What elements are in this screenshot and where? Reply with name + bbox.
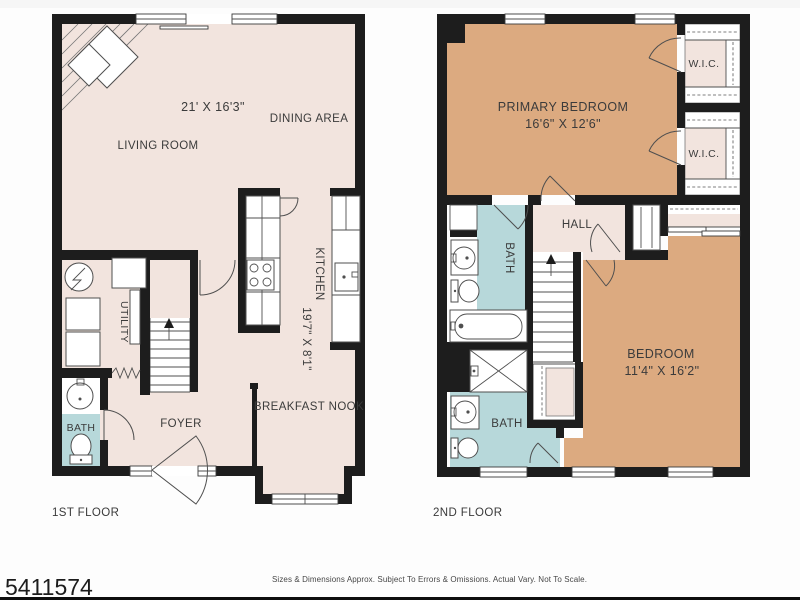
wic-lower-label: W.I.C. <box>689 148 720 160</box>
washer <box>66 298 100 330</box>
bath1-sink <box>67 383 93 409</box>
floor2-plan: PRIMARY BEDROOM 16'6" X 12'6" W.I.C. W.I… <box>425 5 760 505</box>
front-door-opening <box>152 466 198 476</box>
primary-bedroom-label: PRIMARY BEDROOM <box>498 100 629 114</box>
floor2-title: 2ND FLOOR <box>433 507 502 519</box>
bay-floor <box>263 466 344 494</box>
dryer <box>66 332 100 366</box>
floorplan-page: 21' X 16'3" DINING AREA LIVING ROOM KITC… <box>0 0 800 600</box>
kitchen-counter <box>332 196 360 342</box>
floor1-plan: 21' X 16'3" DINING AREA LIVING ROOM KITC… <box>40 5 380 515</box>
bath1-toilet <box>71 434 91 458</box>
water-heater <box>65 263 93 291</box>
living-room-dims: 21' X 16'3" <box>181 100 245 114</box>
bedroom-closet <box>668 205 740 236</box>
bedroom-label: BEDROOM <box>627 347 694 361</box>
kitchen-dims: 19'7" X 8'1" <box>300 307 312 370</box>
utility-label: UTILITY <box>118 301 130 343</box>
foyer-label: FOYER <box>160 418 202 430</box>
sliding-panel <box>160 26 208 29</box>
floor1-title: 1ST FLOOR <box>52 507 119 519</box>
bath-lower-fixtures <box>451 396 479 458</box>
bedroom-dims: 11'4" X 16'2" <box>625 364 700 378</box>
stove <box>247 260 274 290</box>
hall-label: HALL <box>562 219 593 231</box>
utility-appliance <box>112 258 146 288</box>
bath-upper-sink <box>451 240 478 275</box>
dining-area-label: DINING AREA <box>270 113 349 125</box>
stairwell-floor <box>150 318 190 392</box>
kitchen-label: KITCHEN <box>313 247 325 300</box>
stairwell2-floor <box>533 252 573 362</box>
living-room-label: LIVING ROOM <box>117 140 198 152</box>
primary-bedroom-dims: 16'6" X 12'6" <box>525 117 601 131</box>
bath-upper-label: BATH <box>503 242 515 273</box>
hall-closet <box>633 205 660 250</box>
breakfast-nook-label: BREAKFAST NOOK <box>254 401 364 413</box>
shower <box>470 350 527 392</box>
bath-upper-counter <box>450 205 477 230</box>
bath1-label: BATH <box>67 422 96 434</box>
bath-lower-label: BATH <box>491 418 522 430</box>
utility-counter <box>130 290 140 344</box>
understairs-closet <box>533 364 578 420</box>
disclaimer-text: Sizes & Dimensions Approx. Subject To Er… <box>272 575 587 584</box>
wic-upper-label: W.I.C. <box>689 58 720 70</box>
